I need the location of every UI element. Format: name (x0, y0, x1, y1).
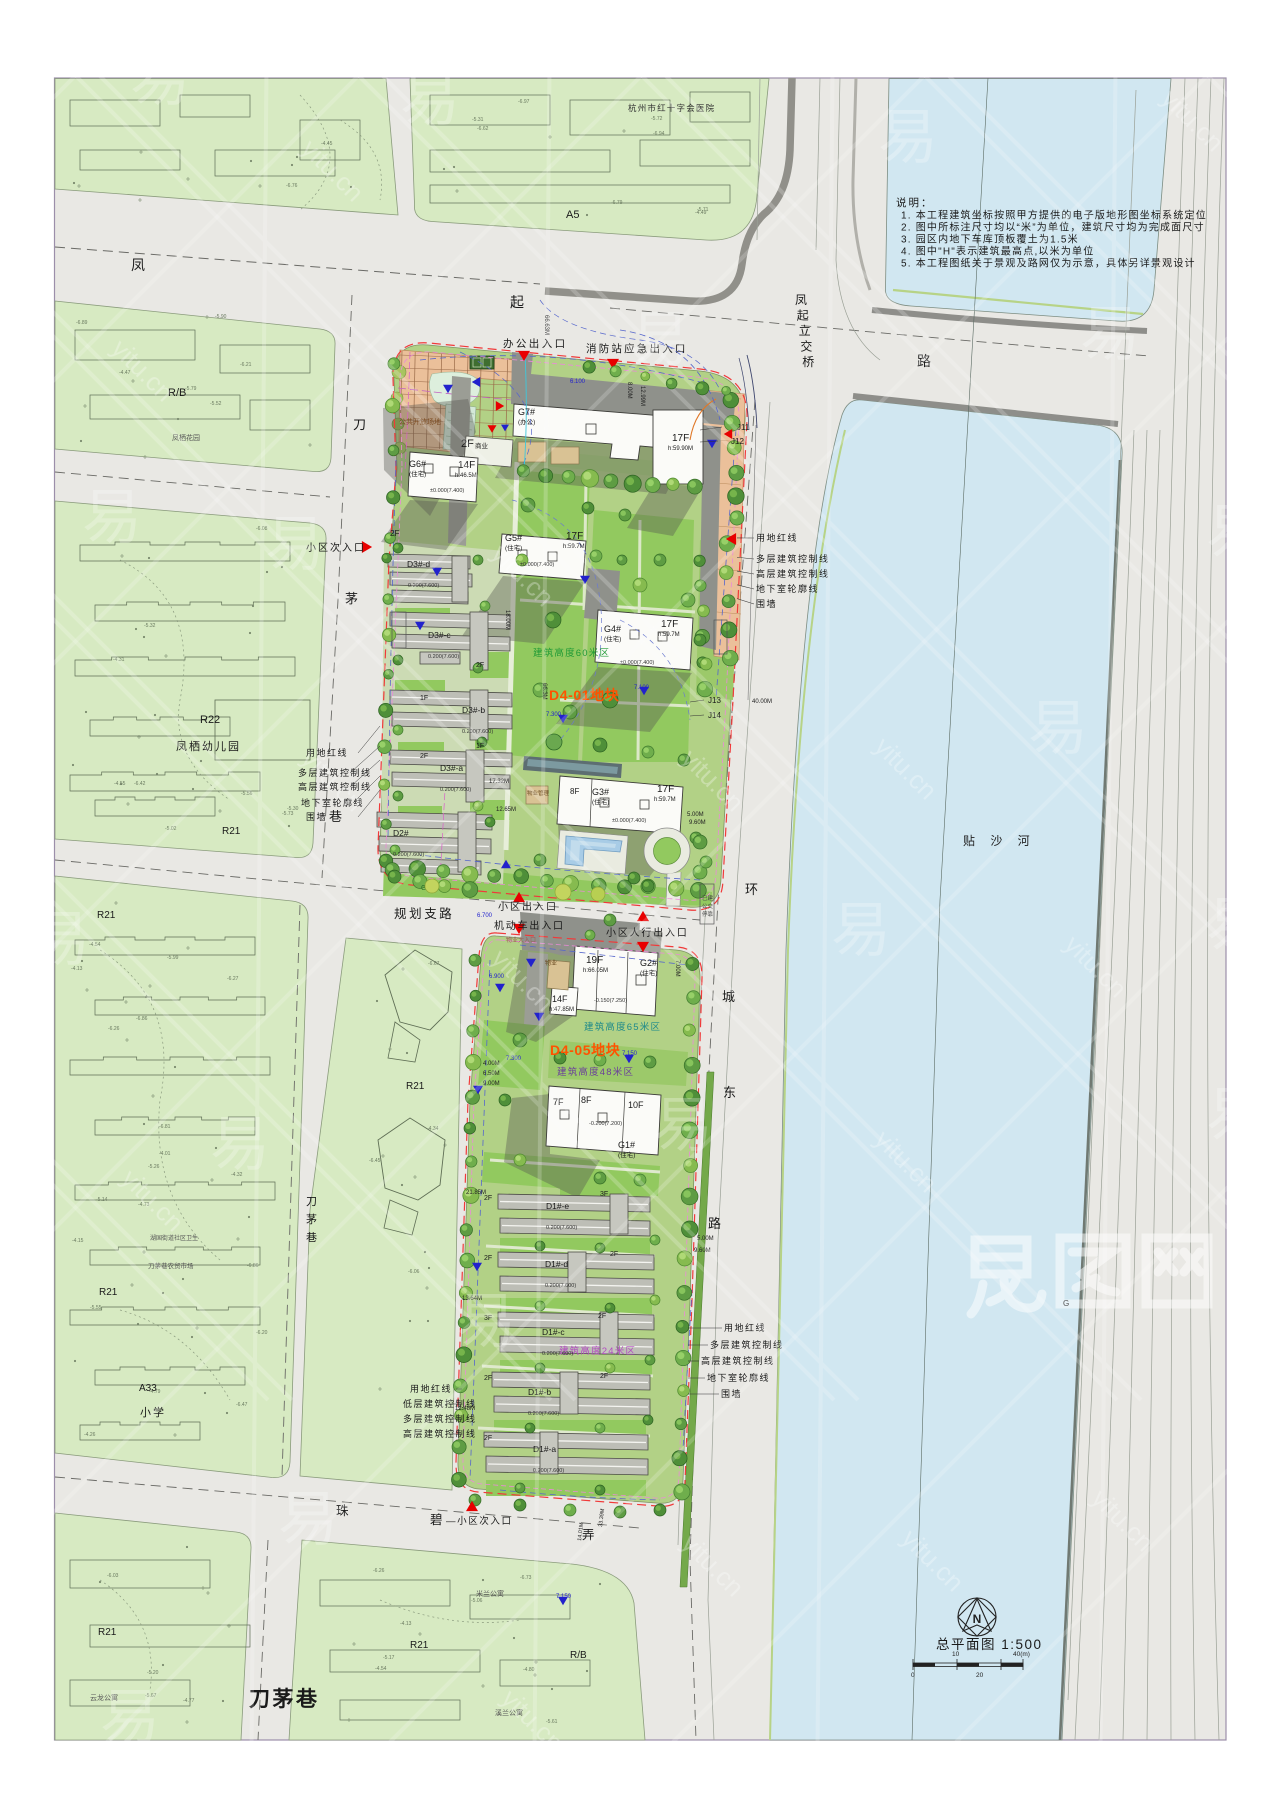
svg-text:40.00M: 40.00M (752, 699, 772, 705)
svg-text:6.700: 6.700 (477, 913, 493, 919)
svg-text:巷: 巷 (329, 809, 342, 824)
svg-text:7.300: 7.300 (546, 712, 562, 718)
svg-text:(住宅): (住宅) (640, 968, 657, 977)
svg-text:米兰公寓: 米兰公寓 (476, 1589, 504, 1598)
svg-text:2F: 2F (484, 1255, 492, 1262)
svg-text:—小区次入口: —小区次入口 (446, 1515, 513, 1527)
svg-text:G1#: G1# (618, 1140, 635, 1150)
svg-text:10: 10 (952, 1651, 960, 1658)
svg-text:易: 易 (1028, 695, 1088, 762)
svg-text:R21: R21 (406, 1081, 425, 1092)
svg-text:10F: 10F (628, 1100, 644, 1110)
svg-text:12.65M: 12.65M (496, 807, 516, 813)
svg-text:-5.32: -5.32 (144, 623, 156, 629)
svg-text:(住宅): (住宅) (409, 469, 426, 478)
svg-text:R21: R21 (97, 910, 116, 921)
svg-text:机动车出入口: 机动车出入口 (494, 919, 565, 932)
svg-text:说明：: 说明： (896, 196, 934, 209)
svg-text:20: 20 (976, 1672, 984, 1679)
svg-text:-0.150(7.250): -0.150(7.250) (594, 998, 627, 1004)
svg-text:0.200(7.600): 0.200(7.600) (393, 852, 424, 858)
svg-text:2F: 2F (476, 662, 484, 669)
svg-text:用地红线: 用地红线 (410, 1383, 452, 1394)
svg-text:D1#-d: D1#-d (545, 1259, 568, 1269)
svg-text:-4.15: -4.15 (72, 1238, 84, 1244)
svg-text:桥: 桥 (802, 355, 814, 369)
svg-text:2F: 2F (484, 1435, 492, 1442)
svg-text:6.100: 6.100 (570, 379, 586, 385)
svg-text:-5.73: -5.73 (282, 811, 294, 817)
svg-text:易: 易 (1206, 892, 1266, 959)
svg-text:地下室轮廓线: 地下室轮廓线 (756, 583, 819, 594)
svg-text:-6.97: -6.97 (518, 99, 530, 105)
svg-text:G4#: G4# (604, 624, 621, 634)
svg-text:9.60M: 9.60M (689, 820, 706, 826)
svg-text:-5.72: -5.72 (651, 116, 663, 122)
svg-text:立: 立 (799, 323, 811, 338)
svg-text:D3#-c: D3#-c (428, 630, 451, 640)
svg-text:±0.000(7.400): ±0.000(7.400) (430, 488, 464, 494)
svg-text:易: 易 (1080, 301, 1140, 368)
svg-text:易: 易 (82, 484, 142, 551)
svg-text:建筑高度65米区: 建筑高度65米区 (584, 1021, 661, 1033)
svg-text:起: 起 (797, 309, 809, 323)
svg-text:R/B: R/B (570, 1650, 587, 1661)
svg-text:易: 易 (400, 66, 460, 133)
svg-text:易: 易 (456, 1288, 516, 1355)
svg-text:易: 易 (653, 1092, 713, 1159)
svg-text:-5.55: -5.55 (90, 1305, 102, 1311)
svg-text:-6.67: -6.67 (428, 961, 440, 967)
svg-text:-5.20: -5.20 (147, 1670, 159, 1676)
svg-text:路: 路 (708, 1216, 721, 1231)
svg-text:D3#-a: D3#-a (440, 763, 463, 773)
svg-text:-4.13: -4.13 (400, 1621, 412, 1627)
svg-text:茅: 茅 (306, 1213, 317, 1226)
svg-text:2F: 2F (610, 1251, 618, 1258)
svg-text:0.200(7.600): 0.200(7.600) (528, 1411, 559, 1417)
svg-text:8F: 8F (570, 787, 579, 796)
svg-text:-6.27: -6.27 (227, 976, 239, 982)
svg-text:-5.79: -5.79 (185, 386, 197, 392)
svg-text:-5.99: -5.99 (167, 955, 179, 961)
svg-text:易: 易 (278, 1486, 338, 1553)
svg-text:-5.06: -5.06 (471, 1598, 483, 1604)
svg-text:±0.000(7.400): ±0.000(7.400) (612, 818, 646, 824)
svg-text:2F: 2F (600, 1373, 608, 1380)
svg-text:8F: 8F (581, 1095, 592, 1105)
svg-text:-5.17: -5.17 (383, 1655, 395, 1661)
svg-text:停靠: 停靠 (702, 910, 714, 918)
svg-text:-5.71: -5.71 (697, 207, 709, 213)
svg-text:R21: R21 (99, 1287, 118, 1298)
svg-text:G7#: G7# (518, 407, 535, 417)
svg-text:围墙: 围墙 (756, 598, 777, 609)
svg-text:0.200(7.600): 0.200(7.600) (542, 1351, 573, 1357)
svg-text:G2#: G2# (640, 958, 657, 968)
svg-text:-6.26: -6.26 (373, 1568, 385, 1574)
svg-text:围墙: 围墙 (306, 811, 327, 822)
svg-text:物业: 物业 (545, 959, 557, 967)
svg-text:-6.26: -6.26 (108, 1026, 120, 1032)
svg-text:17F: 17F (672, 433, 689, 444)
svg-text:N: N (973, 1612, 982, 1626)
svg-text:多层建筑控制线: 多层建筑控制线 (403, 1413, 477, 1424)
svg-text:(办公): (办公) (518, 417, 535, 426)
svg-text:-6.42: -6.42 (134, 781, 146, 787)
svg-text:R21: R21 (222, 826, 241, 837)
svg-text:建筑高度48米区: 建筑高度48米区 (557, 1066, 634, 1078)
svg-text:0: 0 (911, 1672, 915, 1679)
svg-text:1F: 1F (420, 695, 428, 702)
svg-text:高层建筑控制线: 高层建筑控制线 (756, 568, 830, 579)
svg-text:±0.000(7.400): ±0.000(7.400) (620, 660, 654, 666)
svg-text:易: 易 (878, 104, 938, 171)
svg-text:-6.89: -6.89 (76, 320, 88, 326)
svg-text:-6.06: -6.06 (408, 1269, 420, 1275)
svg-text:D4-05地块: D4-05地块 (550, 1042, 621, 1058)
svg-text:湖国街道社区卫生: 湖国街道社区卫生 (150, 1234, 198, 1242)
svg-text:-4.77: -4.77 (183, 1698, 195, 1704)
svg-text:凤: 凤 (131, 257, 145, 273)
svg-text:12.99M: 12.99M (639, 386, 645, 406)
svg-text:D3#-b: D3#-b (462, 705, 485, 715)
svg-text:-6.73: -6.73 (520, 1575, 532, 1581)
svg-text:物业大入口: 物业大入口 (506, 936, 536, 944)
svg-text:-5.52: -5.52 (210, 401, 222, 407)
svg-text:(住宅): (住宅) (604, 634, 621, 643)
svg-text:R21: R21 (410, 1640, 429, 1651)
svg-text:多层建筑控制线: 多层建筑控制线 (756, 553, 830, 564)
svg-text:17F: 17F (566, 531, 583, 542)
svg-text:17F: 17F (657, 784, 674, 795)
svg-text:-0.200(7.200): -0.200(7.200) (589, 1121, 622, 1127)
svg-text:2F: 2F (390, 529, 399, 538)
svg-text:G3#: G3# (592, 787, 609, 797)
svg-text:刀: 刀 (353, 417, 366, 432)
svg-text:-6.79: -6.79 (611, 200, 623, 206)
svg-text:G: G (1063, 1299, 1069, 1308)
svg-text:-5.14: -5.14 (96, 1197, 108, 1203)
svg-text:D1#-c: D1#-c (542, 1327, 565, 1337)
svg-text:0.200(7.600): 0.200(7.600) (428, 654, 459, 660)
svg-text:易: 易 (1206, 1082, 1266, 1149)
svg-text:-6.21: -6.21 (240, 362, 252, 368)
svg-text:-6.03: -6.03 (107, 1573, 119, 1579)
svg-text:贴 沙 河: 贴 沙 河 (963, 834, 1036, 848)
svg-text:3. 园区内地下车库顶板覆土为1.5米: 3. 园区内地下车库顶板覆土为1.5米 (901, 233, 1079, 246)
svg-text:-5.31: -5.31 (472, 117, 484, 123)
svg-text:巷: 巷 (306, 1231, 317, 1244)
svg-text:-5.90: -5.90 (215, 314, 227, 320)
svg-text:G6#: G6# (409, 459, 426, 469)
svg-text:(住宅): (住宅) (592, 797, 609, 806)
svg-text:起: 起 (510, 294, 524, 310)
svg-text:公交: 公交 (702, 902, 714, 910)
svg-text:D1#-e: D1#-e (546, 1201, 569, 1211)
svg-text:易: 易 (1206, 499, 1266, 566)
svg-text:-4.55: -4.55 (114, 781, 126, 787)
svg-text:碧: 碧 (430, 1513, 443, 1527)
svg-text:J12: J12 (731, 437, 744, 446)
svg-text:-6.94: -6.94 (653, 131, 665, 137)
svg-text:易: 易 (130, 46, 190, 113)
svg-text:R21: R21 (98, 1627, 117, 1638)
svg-text:-6.20: -6.20 (256, 1330, 268, 1336)
svg-text:2F: 2F (598, 1313, 606, 1320)
svg-text:D2#: D2# (393, 828, 409, 838)
svg-text:-6.47: -6.47 (236, 1402, 248, 1408)
svg-text:用地红线: 用地红线 (756, 532, 798, 543)
svg-text:A33: A33 (139, 1383, 157, 1394)
svg-text:-4.80: -4.80 (523, 1667, 535, 1673)
svg-text:h:59.7M: h:59.7M (654, 797, 676, 803)
svg-text:A5: A5 (566, 209, 579, 221)
svg-text:易: 易 (30, 906, 90, 973)
svg-text:刀茅巷: 刀茅巷 (249, 1687, 320, 1711)
svg-text:0.200(7.600): 0.200(7.600) (440, 787, 471, 793)
svg-text:-4.54: -4.54 (375, 1666, 387, 1672)
svg-text:2F: 2F (484, 1375, 492, 1382)
svg-text:-5.26: -5.26 (148, 1164, 160, 1170)
svg-text:18.00M: 18.00M (504, 610, 510, 630)
svg-text:已建: 已建 (702, 894, 714, 902)
svg-text:4. 图中"H"表示建筑最高点,以米为单位: 4. 图中"H"表示建筑最高点,以米为单位 (901, 245, 1094, 258)
svg-text:5. 本工程图纸关于景观及路网仅为示意，具体另详景观设计: 5. 本工程图纸关于景观及路网仅为示意，具体另详景观设计 (901, 257, 1196, 270)
svg-text:21.85M: 21.85M (466, 1190, 486, 1196)
svg-text:(住宅): (住宅) (618, 1150, 635, 1159)
svg-text:刀: 刀 (306, 1196, 317, 1208)
svg-text:小区出入口: 小区出入口 (498, 900, 558, 913)
svg-text:东: 东 (723, 1085, 736, 1100)
svg-text:易: 易 (265, 511, 325, 578)
svg-text:8.00M: 8.00M (626, 382, 632, 399)
svg-text:7.100: 7.100 (634, 685, 650, 691)
svg-text:D3#-d: D3#-d (407, 559, 430, 569)
svg-text:h:59.90M: h:59.90M (668, 446, 693, 452)
svg-text:7.150: 7.150 (622, 1051, 638, 1057)
svg-text:易: 易 (831, 897, 891, 964)
svg-text:-6.86: -6.86 (136, 1016, 148, 1022)
svg-text:0.200(7.600): 0.200(7.600) (546, 1225, 577, 1231)
svg-text:2F: 2F (420, 753, 428, 760)
svg-text:总平面图 1:500: 总平面图 1:500 (936, 1637, 1043, 1652)
svg-text:环: 环 (745, 882, 758, 897)
svg-text:商业: 商业 (475, 441, 489, 450)
svg-text:高层建筑控制线: 高层建筑控制线 (701, 1355, 775, 1366)
svg-text:7.150: 7.150 (556, 1594, 572, 1600)
svg-text:交: 交 (800, 339, 812, 354)
svg-text:办公出入口: 办公出入口 (503, 337, 568, 350)
svg-text:1. 本工程建筑坐标按照甲方提供的电子版地形图坐标系统定位: 1. 本工程建筑坐标按照甲方提供的电子版地形图坐标系统定位 (901, 209, 1207, 222)
svg-text:易: 易 (100, 1684, 160, 1751)
svg-text:-4.26: -4.26 (84, 1432, 96, 1438)
svg-text:-6.62: -6.62 (477, 126, 489, 132)
svg-text:易: 易 (210, 1111, 270, 1178)
svg-text:R22: R22 (200, 714, 220, 726)
svg-text:2F: 2F (484, 1195, 492, 1202)
svg-text:3F: 3F (600, 1191, 608, 1198)
svg-text:5.00M: 5.00M (687, 812, 704, 818)
svg-text:-6.45: -6.45 (369, 1158, 381, 1164)
svg-text:易: 易 (630, 306, 690, 373)
svg-text:规划支路: 规划支路 (394, 906, 454, 921)
svg-text:-6.76: -6.76 (286, 183, 298, 189)
svg-text:凤: 凤 (795, 293, 807, 307)
svg-text:40(m): 40(m) (1013, 1651, 1030, 1658)
